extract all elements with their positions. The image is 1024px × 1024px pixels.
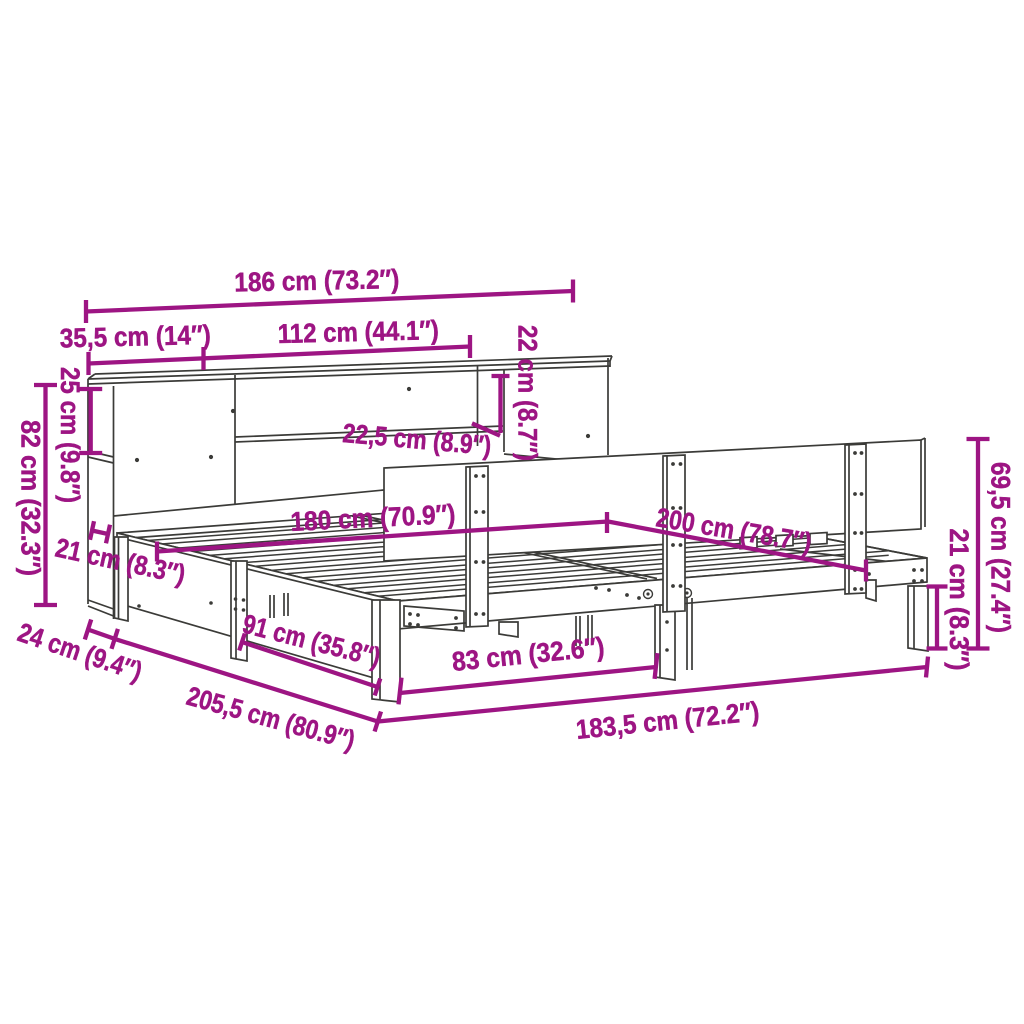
svg-text:112 cm (44.1″): 112 cm (44.1″)	[277, 315, 439, 349]
svg-text:22 cm (8.7″): 22 cm (8.7″)	[513, 325, 543, 461]
svg-text:82 cm (32.3″): 82 cm (32.3″)	[16, 420, 46, 576]
svg-text:21 cm (8.3″): 21 cm (8.3″)	[944, 529, 974, 671]
svg-text:186 cm (73.2″): 186 cm (73.2″)	[234, 264, 400, 297]
svg-text:25 cm (9.8″): 25 cm (9.8″)	[55, 367, 85, 503]
svg-text:35,5 cm (14″): 35,5 cm (14″)	[59, 320, 211, 354]
svg-text:69,5 cm (27.4″): 69,5 cm (27.4″)	[986, 462, 1016, 633]
